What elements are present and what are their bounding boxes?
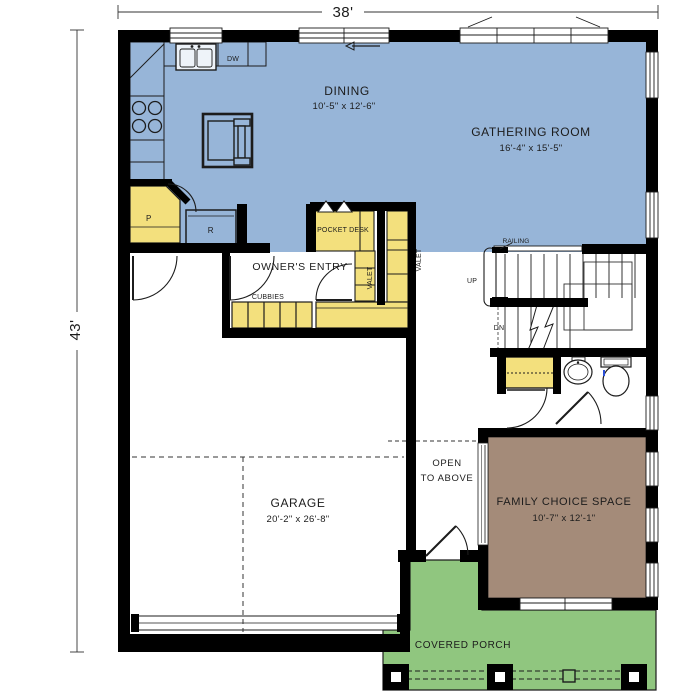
gathering-room-label: GATHERING ROOM bbox=[471, 125, 591, 139]
garage-door bbox=[131, 614, 405, 632]
floor-plan-canvas: 38' 43' bbox=[0, 0, 700, 700]
dining-label: DINING bbox=[324, 84, 370, 98]
refrigerator-label: R bbox=[208, 226, 214, 235]
pocket-desk-cabinets bbox=[314, 211, 408, 302]
bench bbox=[316, 302, 408, 328]
owners-entry-label: OWNER'S ENTRY bbox=[252, 261, 347, 273]
open-to-above-line2: TO ABOVE bbox=[421, 473, 474, 484]
dishwasher-label: DW bbox=[227, 56, 239, 63]
pocket-desk-label: POCKET DESK bbox=[317, 227, 369, 234]
pantry bbox=[130, 186, 180, 243]
covered-porch-label: COVERED PORCH bbox=[415, 640, 511, 651]
floor-plan-drawing: 38' 43' bbox=[0, 0, 700, 700]
height-dimension-label: 43' bbox=[67, 319, 84, 340]
valet-label-outer: VALET bbox=[416, 248, 423, 271]
dining-size: 10'-5" x 12'-6" bbox=[313, 101, 376, 112]
stairs-up-label: UP bbox=[467, 278, 477, 285]
family-choice-size: 10'-7" x 12'-1" bbox=[533, 513, 596, 524]
cubbies-label: CUBBIES bbox=[252, 294, 284, 301]
family-space-slider-opening bbox=[478, 443, 488, 545]
valet-label-inner: VALET bbox=[367, 266, 374, 289]
kitchen-island-table bbox=[203, 114, 252, 167]
gathering-room-size: 16'-4" x 15'-5" bbox=[500, 143, 563, 154]
garage-size: 20'-2" x 26'-8" bbox=[267, 514, 330, 525]
stair-break-line bbox=[528, 305, 554, 350]
width-dimension-label: 38' bbox=[332, 4, 353, 21]
open-to-above-line1: OPEN bbox=[432, 458, 461, 469]
stair-railing bbox=[484, 243, 582, 306]
hall-closet bbox=[505, 357, 555, 388]
family-choice-label: FAMILY CHOICE SPACE bbox=[497, 496, 632, 508]
railing-label: RAILING bbox=[503, 238, 530, 245]
cubbies-unit bbox=[232, 302, 312, 328]
garage-label: GARAGE bbox=[271, 496, 326, 510]
stairs-down-label: DN bbox=[494, 325, 505, 332]
powder-room-fixtures bbox=[564, 357, 631, 396]
kitchen-sink bbox=[176, 44, 216, 70]
pantry-label: P bbox=[146, 214, 152, 223]
